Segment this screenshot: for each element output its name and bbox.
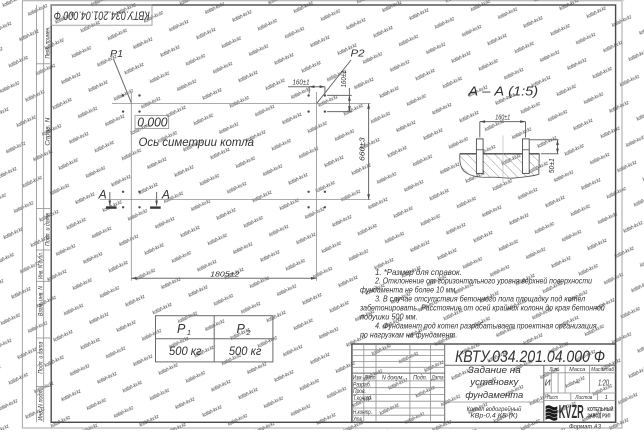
svg-text:Подп.: Подп.: [413, 375, 427, 381]
svg-text:КОТЕЛЬНЫЙ: КОТЕЛЬНЫЙ: [587, 405, 613, 413]
svg-text:КВТУ.034.201.04.000 Ф: КВТУ.034.201.04.000 Ф: [455, 348, 605, 366]
svg-text:P2: P2: [351, 48, 365, 60]
svg-text:Н.контр.: Н.контр.: [353, 410, 372, 416]
svg-text:А: А: [161, 188, 170, 202]
svg-text:Инв. N дубл.: Инв. N дубл.: [38, 252, 45, 279]
svg-text:фундамента: фундамента: [465, 390, 523, 400]
svg-text:1805±2: 1805±2: [210, 270, 240, 279]
svg-text:Задание на: Задание на: [468, 365, 521, 375]
svg-text:ЗАВОД РЭП: ЗАВОД РЭП: [587, 413, 610, 419]
svg-text:1: 1: [605, 395, 608, 401]
svg-text:500 кг: 500 кг: [169, 346, 202, 358]
svg-text:Справ. N: Справ. N: [44, 117, 51, 146]
svg-text:660±3: 660±3: [358, 136, 367, 161]
svg-text:P1: P1: [110, 48, 123, 60]
svg-text:Утв.: Утв.: [352, 417, 363, 423]
svg-text:Ось симетрии котла: Ось симетрии котла: [139, 135, 255, 149]
svg-text:Листов: Листов: [574, 395, 592, 401]
svg-text:N докум.: N докум.: [382, 375, 404, 381]
svg-text:Дата: Дата: [431, 375, 444, 381]
svg-text:Инв. N подл.: Инв. N подл.: [38, 389, 45, 421]
svg-text:А: А: [98, 188, 107, 202]
svg-text:по нагрузкам на фундамент.: по нагрузкам на фундамент.: [360, 329, 457, 339]
svg-text:Лит.: Лит.: [549, 367, 560, 373]
svg-text:160±1: 160±1: [293, 77, 310, 86]
svg-text:Изм.: Изм.: [353, 375, 363, 381]
svg-text:установку: установку: [469, 377, 520, 387]
svg-text:1:20: 1:20: [598, 379, 609, 388]
svg-text:Подп. и дата: Подп. и дата: [38, 341, 45, 373]
svg-text:Формат А3: Формат А3: [569, 425, 602, 430]
svg-text:Разраб.: Разраб.: [353, 382, 371, 388]
svg-text:Масштаб: Масштаб: [591, 367, 615, 373]
svg-text:500 кг: 500 кг: [229, 346, 262, 358]
svg-text:Подп. и дата: Подп. и дата: [44, 213, 51, 246]
svg-text:КВТУ.034.201.04.000 Ф: КВТУ.034.201.04.000 Ф: [54, 8, 150, 21]
svg-text:Перв. примен.: Перв. примен.: [44, 27, 51, 59]
svg-text:Лист: Лист: [364, 375, 376, 381]
svg-text:Взам. инв. N: Взам. инв. N: [38, 286, 45, 316]
svg-text:KVZR: KVZR: [559, 402, 584, 422]
svg-text:160±1: 160±1: [339, 71, 348, 88]
svg-text:50±1: 50±1: [547, 158, 556, 173]
svg-text:Масса: Масса: [569, 367, 586, 373]
svg-text:КВр-0,4 КБ (К): КВр-0,4 КБ (К): [470, 413, 517, 420]
svg-text:Пров.: Пров.: [353, 389, 366, 395]
svg-text:И: И: [545, 379, 551, 388]
svg-text:А – А (1:5): А – А (1:5): [467, 85, 538, 99]
svg-text:Т.контр.: Т.контр.: [353, 396, 372, 402]
svg-text:–: –: [574, 378, 580, 387]
svg-text:Лист: Лист: [546, 395, 558, 401]
svg-text:160±1: 160±1: [495, 113, 510, 122]
svg-text:0.000: 0.000: [137, 115, 168, 130]
